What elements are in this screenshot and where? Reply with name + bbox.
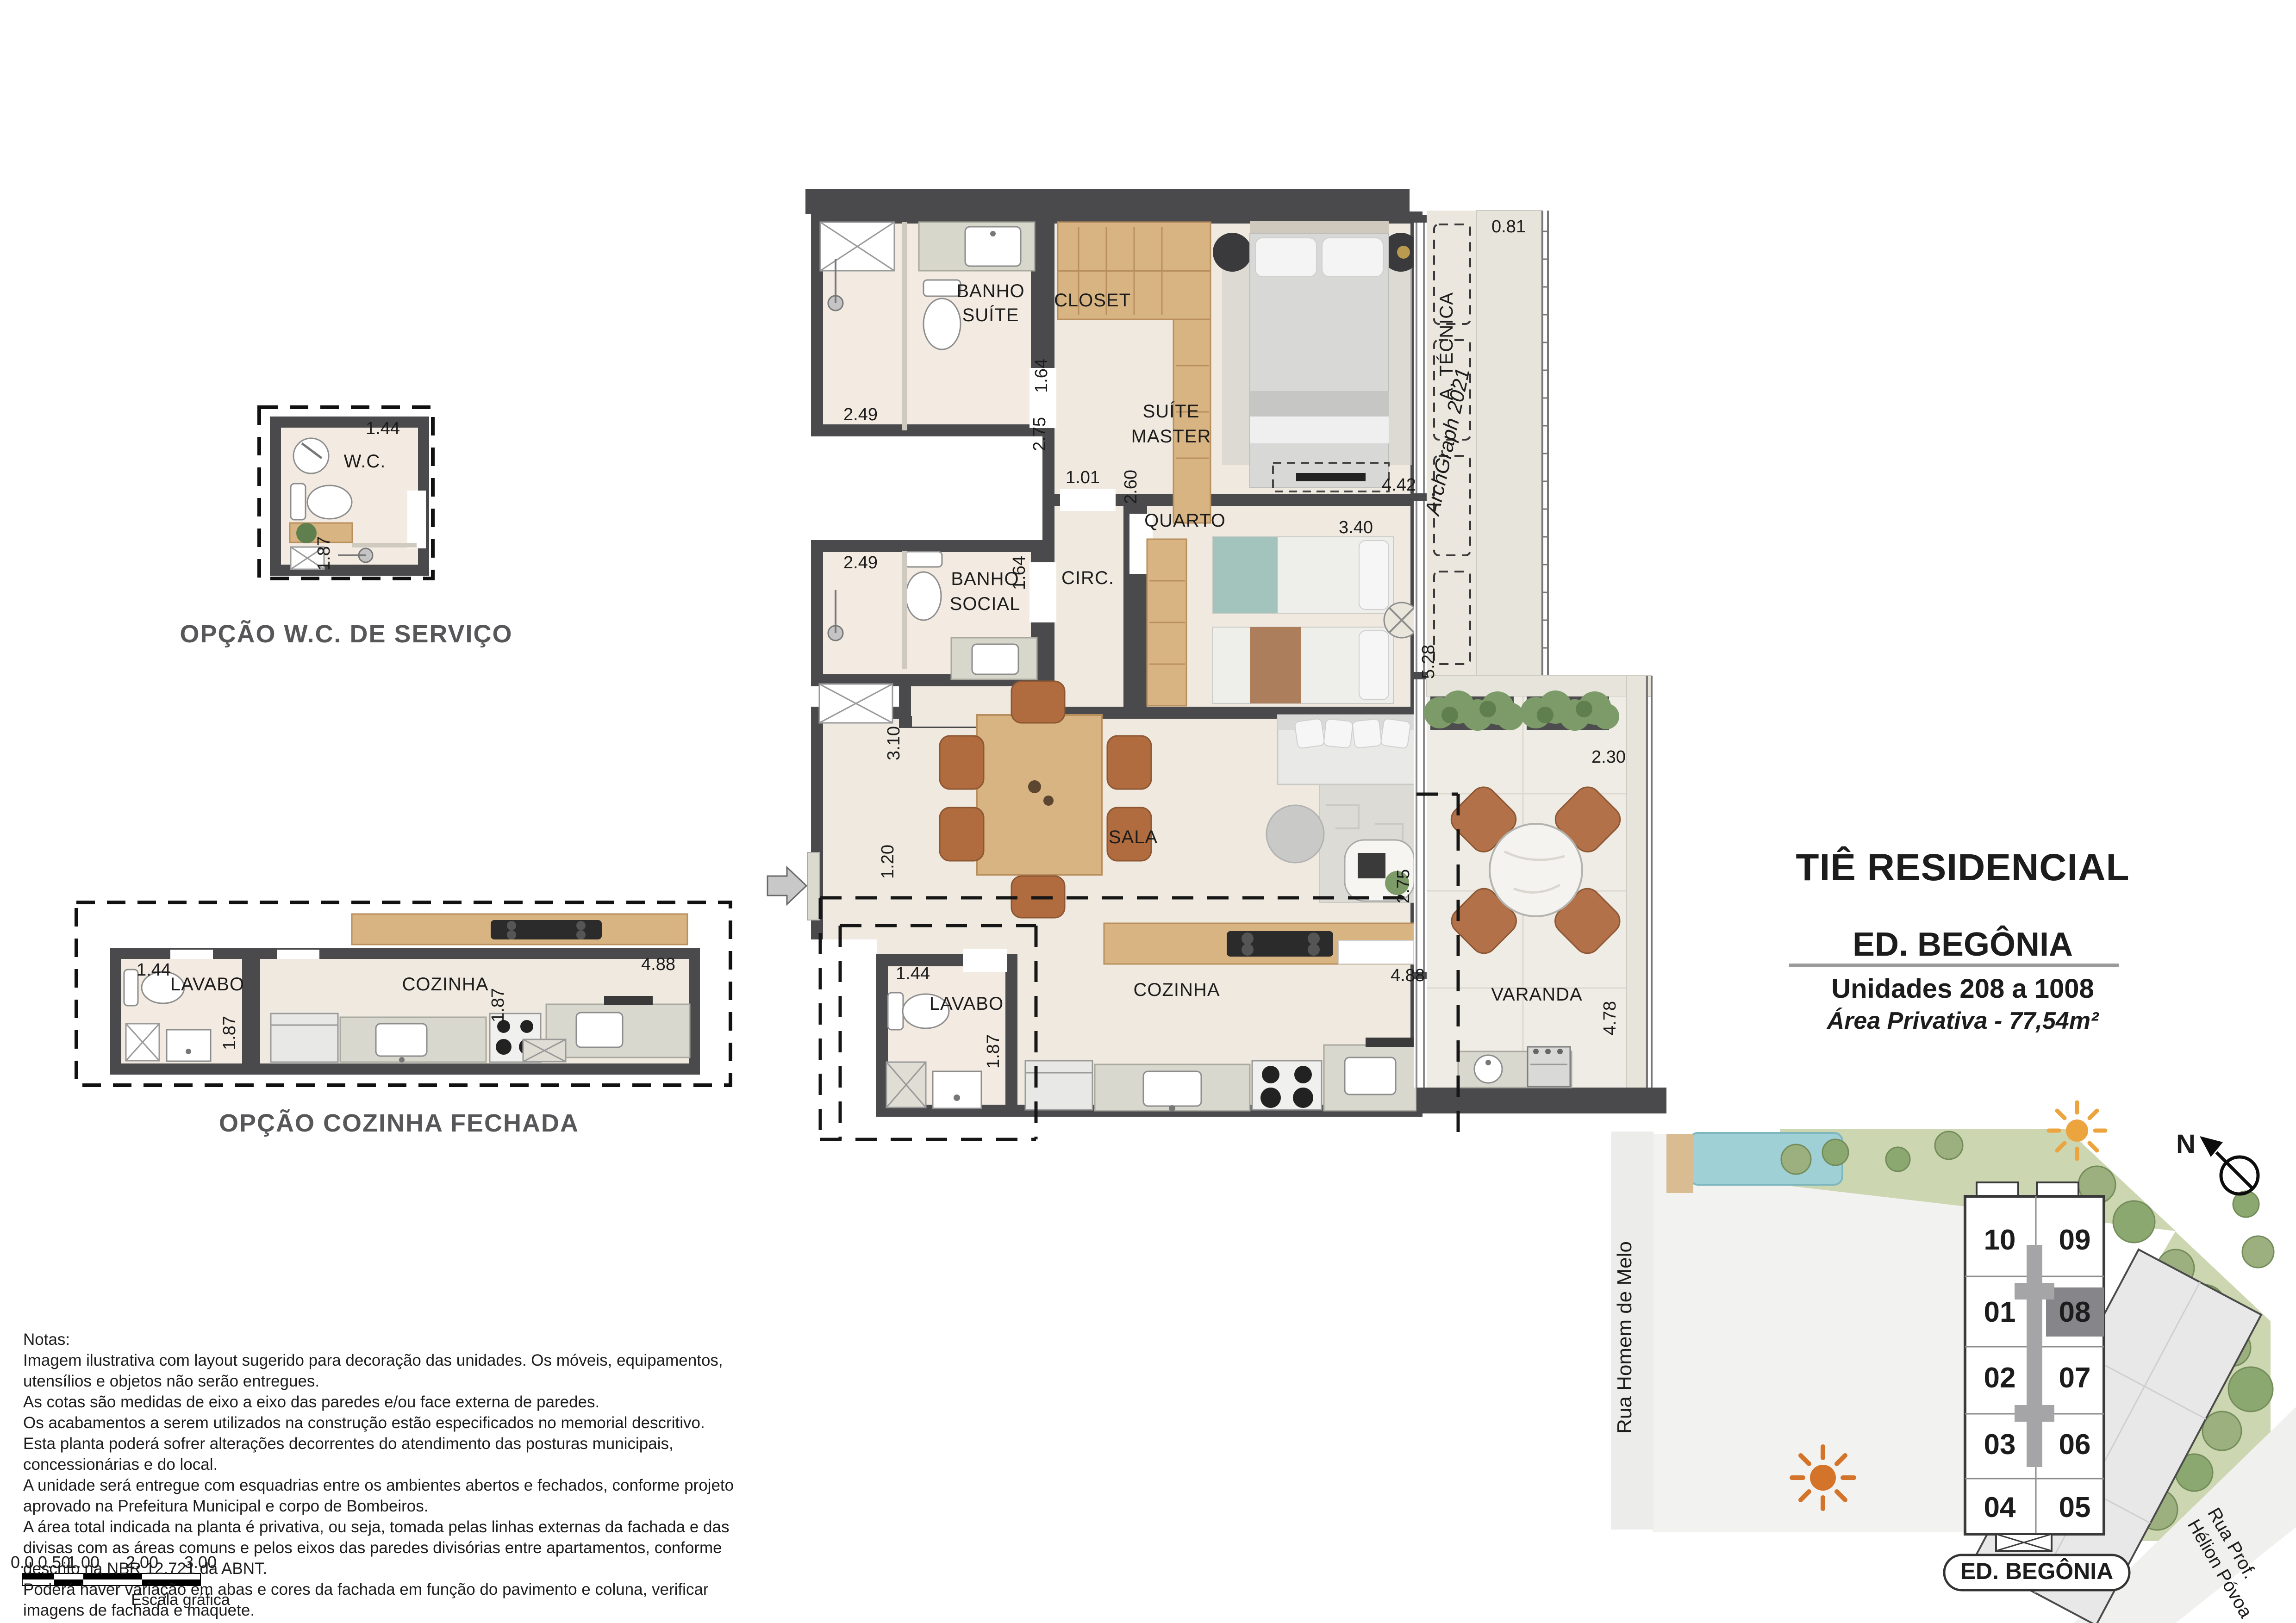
room-circ [1048, 500, 1129, 713]
notes-line: A unidade será entregue com esquadrias e… [23, 1475, 773, 1496]
notes-line: descrito na NBR 12.721 da ABNT. [23, 1558, 773, 1579]
building-core [2027, 1245, 2042, 1467]
fridge [271, 1014, 338, 1062]
room-label-banho-suite2: SUÍTE [962, 305, 1019, 325]
dim: 2.30 [1591, 747, 1626, 767]
sun-icon [2049, 1102, 2105, 1159]
dim: 1.87 [984, 1034, 1003, 1069]
north-label: N [2176, 1129, 2196, 1159]
dim: 2.75 [1030, 417, 1049, 451]
room-label-opt-lavabo: LAVABO [170, 974, 244, 995]
notes-line: aprovado na Prefeitura Municipal e corpo… [23, 1496, 773, 1517]
dim: 1.44 [366, 419, 400, 438]
dim: 4.88 [641, 955, 675, 974]
room-label-banho-social: BANHO [951, 569, 1019, 589]
room-label-lavabo: LAVABO [930, 994, 1004, 1014]
room-label-banho-social2: SOCIAL [950, 594, 1021, 614]
room-label-circ: CIRC. [1061, 568, 1114, 588]
washbasin [167, 1030, 211, 1061]
notes-line: divisas com as áreas comuns e pelos eixo… [23, 1537, 773, 1558]
pool [1690, 1133, 1842, 1185]
dim: 1.64 [1010, 556, 1029, 590]
round-sink [293, 438, 329, 473]
dim: 2.75 [1394, 869, 1413, 903]
project-title: TIÊ RESIDENCIAL [1713, 846, 2213, 889]
option-kitchen-title: OPÇÃO COZINHA FECHADA [219, 1109, 579, 1137]
dim: 0.81 [1491, 217, 1526, 236]
unit-number-08: 08 [2059, 1296, 2091, 1328]
unit-number-03: 03 [1984, 1429, 2016, 1461]
notes-line: utensílios e objetos não serão entregues… [23, 1371, 773, 1392]
wall-top [805, 189, 1410, 214]
unit-number-05: 05 [2059, 1492, 2091, 1524]
notes-line: Imagem ilustrativa com layout sugerido p… [23, 1350, 773, 1371]
dim: 3.40 [1339, 518, 1373, 537]
street-label-left: Rua Homem de Melo [1613, 1241, 1636, 1434]
dim: 4.78 [1600, 1001, 1620, 1035]
dim: 1.64 [1032, 359, 1051, 393]
dim: 1.44 [137, 960, 171, 980]
dish-rack [1366, 1038, 1416, 1047]
dim: 2.49 [843, 405, 878, 424]
sink [972, 644, 1018, 674]
pool-deck [1666, 1134, 1693, 1193]
option-wc-title: OPÇÃO W.C. DE SERVIÇO [180, 620, 512, 648]
site-plan: 10 09 01 08 02 07 03 06 04 05 ED. BEGÔNI… [1611, 1102, 2296, 1623]
dim: 1.20 [878, 845, 898, 879]
floorplan-sheet: BANHO SUÍTE CLOSET SUÍTE MASTER QUARTO C… [0, 0, 2296, 1623]
private-area: Área Privativa - 77,54m² [1713, 1007, 2213, 1035]
notes-line: A área total indicada na planta é privat… [23, 1517, 773, 1537]
sink [376, 1024, 427, 1056]
island-pass [1339, 940, 1414, 964]
unit-number-01: 01 [1984, 1296, 2016, 1328]
title-divider [1789, 964, 2119, 967]
notes-title: Notas: [23, 1329, 773, 1350]
detail-cozinha-fechada: LAVABO COZINHA 1.44 1.87 4.88 1.87 OPÇÃO… [76, 902, 730, 1137]
building-pill-label: ED. BEGÔNIA [1960, 1558, 2114, 1584]
unit-number-04: 04 [1984, 1492, 2016, 1524]
varanda-bbq [1458, 1047, 1572, 1088]
room-label-sala: SALA [1109, 827, 1158, 847]
dim: 4.42 [1382, 475, 1416, 495]
unit-number-10: 10 [1984, 1224, 2016, 1256]
round-table [1490, 824, 1582, 916]
notes-line: Os acabamentos a serem utilizados na con… [23, 1412, 773, 1433]
round-sink [1474, 1055, 1502, 1083]
dim: 5.28 [1419, 645, 1438, 679]
atecnica-ledge [1477, 211, 1541, 676]
door-gap [407, 491, 426, 548]
room-label-opt-cozinha: COZINHA [402, 974, 489, 995]
tv [1296, 473, 1366, 481]
shower-divider [902, 222, 907, 430]
toilet [906, 572, 941, 620]
varanda-ledge [1627, 676, 1646, 1113]
toilet [923, 298, 961, 349]
unit-number-09: 09 [2059, 1224, 2091, 1256]
room-label-suite2: MASTER [1131, 426, 1211, 447]
detail-wc-servico: W.C. 1.44 1.87 OPÇÃO W.C. DE SERVIÇO [180, 407, 512, 648]
dim: 1.87 [488, 988, 508, 1022]
shower-divider [902, 551, 907, 669]
wall-varanda-bottom [1416, 1088, 1666, 1113]
room-label-closet: CLOSET [1054, 290, 1131, 311]
bed-headboard [1250, 221, 1389, 233]
dim: 2.60 [1121, 470, 1141, 504]
pouf [1267, 805, 1324, 863]
unit-number-07: 07 [2059, 1362, 2091, 1394]
notes-block: Notas: Imagem ilustrativa com layout sug… [23, 1329, 773, 1621]
unit-number-06: 06 [2059, 1429, 2091, 1461]
dim: 3.10 [884, 726, 904, 760]
nightstand [1213, 233, 1252, 272]
notes-line: As cotas são medidas de eixo a eixo das … [23, 1392, 773, 1412]
site-building-begonia: 10 09 01 08 02 07 03 06 04 05 [1965, 1182, 2104, 1551]
main-apartment-plan: BANHO SUÍTE CLOSET SUÍTE MASTER QUARTO C… [767, 189, 1666, 1139]
entry-sill [807, 852, 819, 920]
notes-line: Esta planta poderá sofrer alterações dec… [23, 1433, 773, 1454]
dining-table [977, 715, 1102, 875]
room-label-banho-suite: BANHO [956, 281, 1024, 301]
room-label-wc: W.C. [344, 451, 386, 472]
dim: 1.01 [1066, 468, 1100, 487]
north-arrow-icon: N [2176, 1129, 2258, 1194]
plant-icon [296, 523, 317, 543]
sink [576, 1013, 623, 1047]
sun-icon [1792, 1447, 1854, 1509]
room-label-quarto: QUARTO [1144, 510, 1226, 531]
notes-line: concessionárias e do local. [23, 1454, 773, 1475]
book [1358, 853, 1385, 878]
notes-line: Poderá haver variação em abas e cores da… [23, 1579, 773, 1600]
entry-arrow-icon [767, 867, 806, 904]
dim: 1.87 [220, 1016, 239, 1050]
unit-number-02: 02 [1984, 1362, 2016, 1394]
units-range: Unidades 208 a 1008 [1713, 973, 2213, 1004]
room-label-cozinha: COZINHA [1134, 980, 1220, 1000]
dim: 4.88 [1391, 966, 1425, 985]
sink [1143, 1071, 1201, 1106]
dish-rack [604, 996, 653, 1005]
dim: 2.49 [843, 553, 878, 572]
toilet [307, 485, 352, 519]
building-title: ED. BEGÔNIA [1713, 926, 2213, 964]
dim: 1.44 [896, 964, 930, 983]
room-label-varanda: VARANDA [1491, 984, 1582, 1005]
dim: 1.87 [314, 536, 334, 571]
room-label-suite: SUÍTE [1143, 401, 1200, 422]
notes-line: imagens de fachada e maquete. [23, 1600, 773, 1621]
sink [1345, 1057, 1396, 1094]
washbasin [933, 1071, 981, 1108]
